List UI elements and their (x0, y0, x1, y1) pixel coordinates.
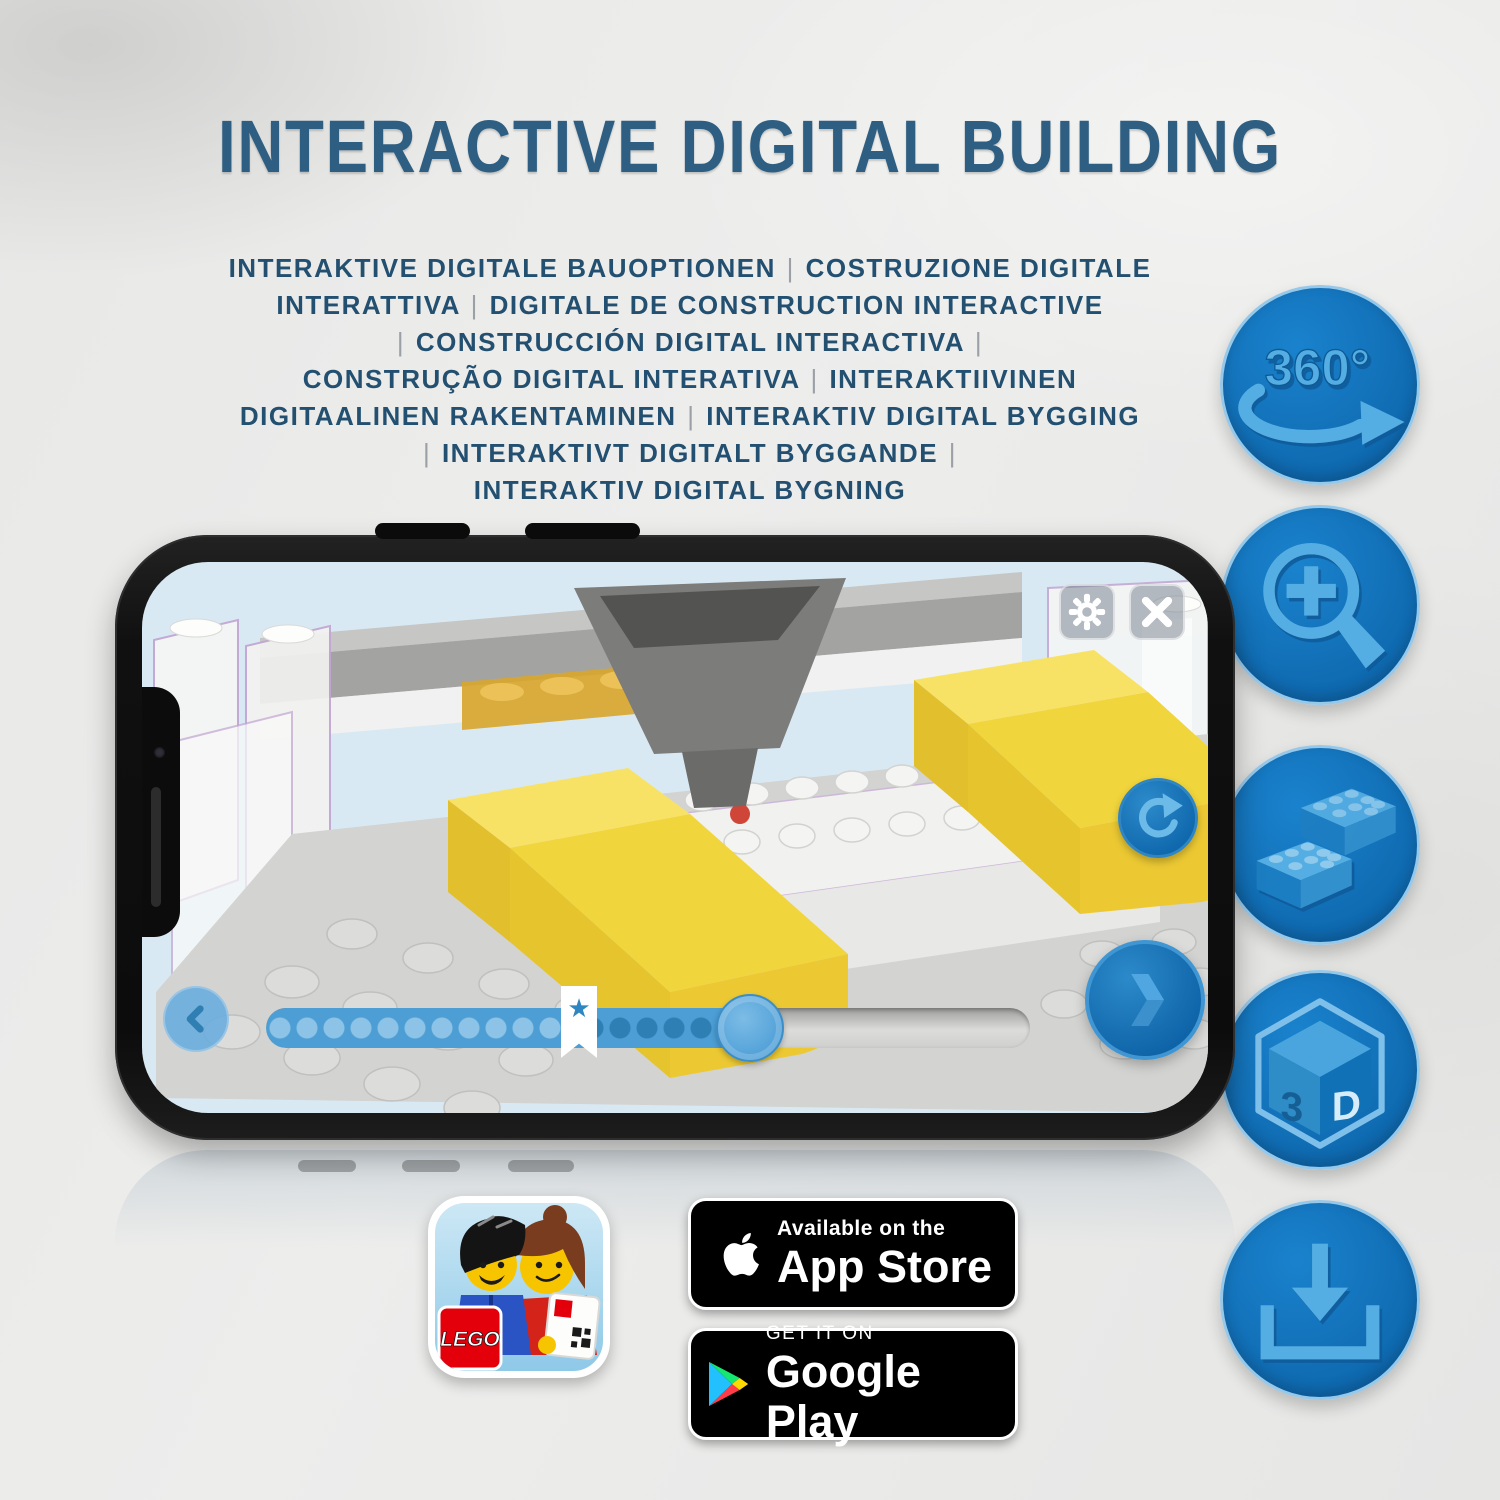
subtitle-line: CONSTRUÇÃO DIGITAL INTERATIVA | INTERAKT… (140, 361, 1240, 398)
download-icon (1232, 1212, 1408, 1388)
google-play-badge[interactable]: GET IT ON Google Play (688, 1328, 1018, 1440)
app-store-name: App Store (777, 1242, 992, 1292)
feature-3d-badge: 3 D (1220, 970, 1420, 1170)
cube-d-label: D (1332, 1080, 1361, 1130)
feature-zoom-badge (1220, 505, 1420, 705)
subtitle-line: | INTERAKTIVT DIGITALT BYGGANDE | (140, 435, 1240, 472)
google-play-icon (709, 1359, 750, 1409)
power-button (525, 523, 640, 539)
zoom-in-icon (1232, 517, 1408, 693)
progress-fill-completed (266, 1008, 579, 1048)
settings-button[interactable] (1059, 584, 1115, 640)
app-store-badge[interactable]: Available on the App Store (688, 1198, 1018, 1310)
rotate-reset-button[interactable] (1118, 778, 1198, 858)
feature-360-rotation-badge: 360° (1220, 285, 1420, 485)
gear-icon (1068, 593, 1106, 631)
feature-brick-badge (1220, 745, 1420, 945)
app-store-tagline: Available on the (777, 1216, 992, 1242)
lego-logo-text: LEGO (440, 1328, 500, 1351)
3d-cube-icon: 3 D (1232, 982, 1408, 1158)
earpiece-speaker (151, 787, 161, 907)
subtitle-line: DIGITAALINEN RAKENTAMINEN | INTERAKTIV D… (140, 398, 1240, 435)
build-progress-slider[interactable] (266, 1008, 1030, 1048)
subtitle-line: INTERATTIVA | DIGITALE DE CONSTRUCTION I… (140, 287, 1240, 324)
subtitle-line: INTERAKTIVE DIGITALE BAUOPTIONEN | COSTR… (140, 250, 1240, 287)
phone-device: ★ (115, 535, 1235, 1140)
reflected-power-button (508, 1160, 574, 1172)
google-play-tagline: GET IT ON (766, 1321, 997, 1347)
360-label: 360° (1265, 339, 1371, 396)
chevron-right-icon (1119, 965, 1171, 1035)
feature-download-badge (1220, 1200, 1420, 1400)
previous-step-button[interactable] (163, 986, 229, 1052)
front-camera (154, 747, 165, 758)
volume-button (375, 523, 470, 539)
360-rotation-icon: 360° (1232, 297, 1408, 473)
close-button[interactable] (1129, 584, 1185, 640)
close-icon (1138, 593, 1176, 631)
next-step-button[interactable] (1085, 940, 1205, 1060)
lego-brick-icon (1232, 757, 1408, 933)
phone-notch (142, 687, 180, 937)
page-title: INTERACTIVE DIGITAL BUILDING (105, 104, 1395, 189)
subtitle-line: | CONSTRUCCIÓN DIGITAL INTERACTIVA | (140, 324, 1240, 361)
phone-reflection (115, 1150, 1235, 1265)
lego-instructions-app-icon[interactable]: LEGO (428, 1196, 610, 1378)
subtitle-line: INTERAKTIV DIGITAL BYGNING (140, 472, 1240, 509)
lego-logo: LEGO (439, 1307, 501, 1369)
reflected-volume-button (402, 1160, 460, 1172)
chevron-left-icon (179, 1002, 213, 1036)
subtitle-block: INTERAKTIVE DIGITALE BAUOPTIONEN | COSTR… (140, 250, 1240, 509)
marketing-canvas: INTERACTIVE DIGITAL BUILDING INTERAKTIVE… (0, 0, 1500, 1500)
app-icon-art: LEGO (435, 1203, 603, 1371)
reflected-volume-button (298, 1160, 356, 1172)
red-accent-piece (730, 804, 750, 824)
apple-icon (709, 1225, 761, 1283)
slider-thumb[interactable] (716, 994, 784, 1062)
google-play-name: Google Play (766, 1347, 997, 1447)
rotate-arrow-icon (1127, 787, 1189, 849)
cube-3-label: 3 (1281, 1082, 1304, 1131)
app-screen: ★ (142, 562, 1208, 1113)
